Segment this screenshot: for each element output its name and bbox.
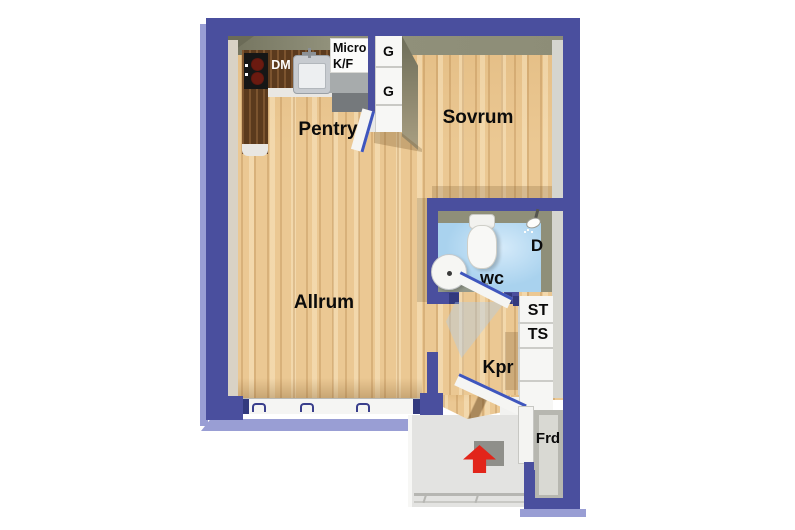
wardrobe-divider bbox=[375, 66, 402, 68]
kitchen-counter-endcap bbox=[242, 144, 268, 156]
window-jamb-left bbox=[243, 399, 249, 414]
microwave-fridge-cabinet-label: Micro K/F bbox=[330, 38, 372, 73]
wc-wall-shadow bbox=[417, 198, 427, 302]
stove-knob bbox=[245, 64, 248, 67]
wardrobe-label-1: G bbox=[375, 40, 402, 62]
window-vent-mark bbox=[300, 403, 314, 412]
window-vent-mark bbox=[356, 403, 370, 412]
sink-basin bbox=[298, 63, 326, 89]
stove-burner bbox=[251, 72, 264, 85]
window bbox=[243, 398, 420, 414]
kitchen-sink bbox=[293, 55, 331, 94]
toilet bbox=[467, 225, 497, 269]
outer-wall-left bbox=[206, 18, 228, 420]
room-label-kpr: Kpr bbox=[475, 355, 521, 379]
floor-plan: DM Micro K/F G G D wc bbox=[0, 0, 795, 530]
wardrobe-divider bbox=[375, 104, 402, 106]
stove-burner bbox=[251, 58, 264, 71]
microwave-fridge-cabinet bbox=[330, 73, 372, 93]
shower-label: D bbox=[527, 234, 547, 256]
storage-shaft-inner bbox=[539, 415, 558, 495]
outer-wall-bevel-bottom bbox=[201, 419, 441, 431]
room-label-sovrum: Sovrum bbox=[434, 104, 522, 130]
bedroom-floor-shadow bbox=[432, 186, 552, 198]
room-label-allrum: Allrum bbox=[281, 289, 367, 315]
cleaning-cabinet-label: ST bbox=[521, 300, 555, 322]
floor-shadow-bottom bbox=[238, 378, 422, 400]
landing-rail bbox=[414, 501, 526, 503]
storage-label: Frd bbox=[530, 428, 566, 448]
washbasin-drain bbox=[447, 271, 452, 276]
closet-divider bbox=[518, 347, 553, 349]
wardrobe-label-2: G bbox=[375, 80, 402, 102]
closet-wall-end bbox=[513, 296, 519, 306]
interior-wall-face-left bbox=[228, 40, 238, 398]
dishwasher-label: DM bbox=[267, 57, 295, 73]
micro-label-line1: Micro bbox=[333, 40, 371, 56]
outer-wall-bevel-bottom-right bbox=[520, 509, 586, 517]
sink-faucet-bar bbox=[302, 52, 316, 55]
shower-drop bbox=[527, 229, 529, 231]
stove-knob bbox=[245, 73, 248, 76]
outer-wall-top bbox=[206, 18, 580, 37]
micro-label-line2: K/F bbox=[333, 56, 371, 72]
shower-head-icon bbox=[522, 206, 544, 236]
landing-rail bbox=[414, 493, 526, 496]
room-label-pentry: Pentry bbox=[286, 116, 370, 142]
window-jamb-right bbox=[413, 399, 420, 414]
landing-edge bbox=[408, 415, 412, 507]
drying-cabinet-label: TS bbox=[521, 324, 555, 346]
shower-drop bbox=[524, 231, 526, 233]
stove bbox=[244, 53, 268, 89]
shower-drop bbox=[531, 231, 533, 233]
window-vent-mark bbox=[252, 403, 266, 412]
closet-divider bbox=[518, 380, 553, 382]
wc-wall-left bbox=[427, 198, 438, 304]
outer-wall-bottom-left bbox=[206, 396, 243, 420]
